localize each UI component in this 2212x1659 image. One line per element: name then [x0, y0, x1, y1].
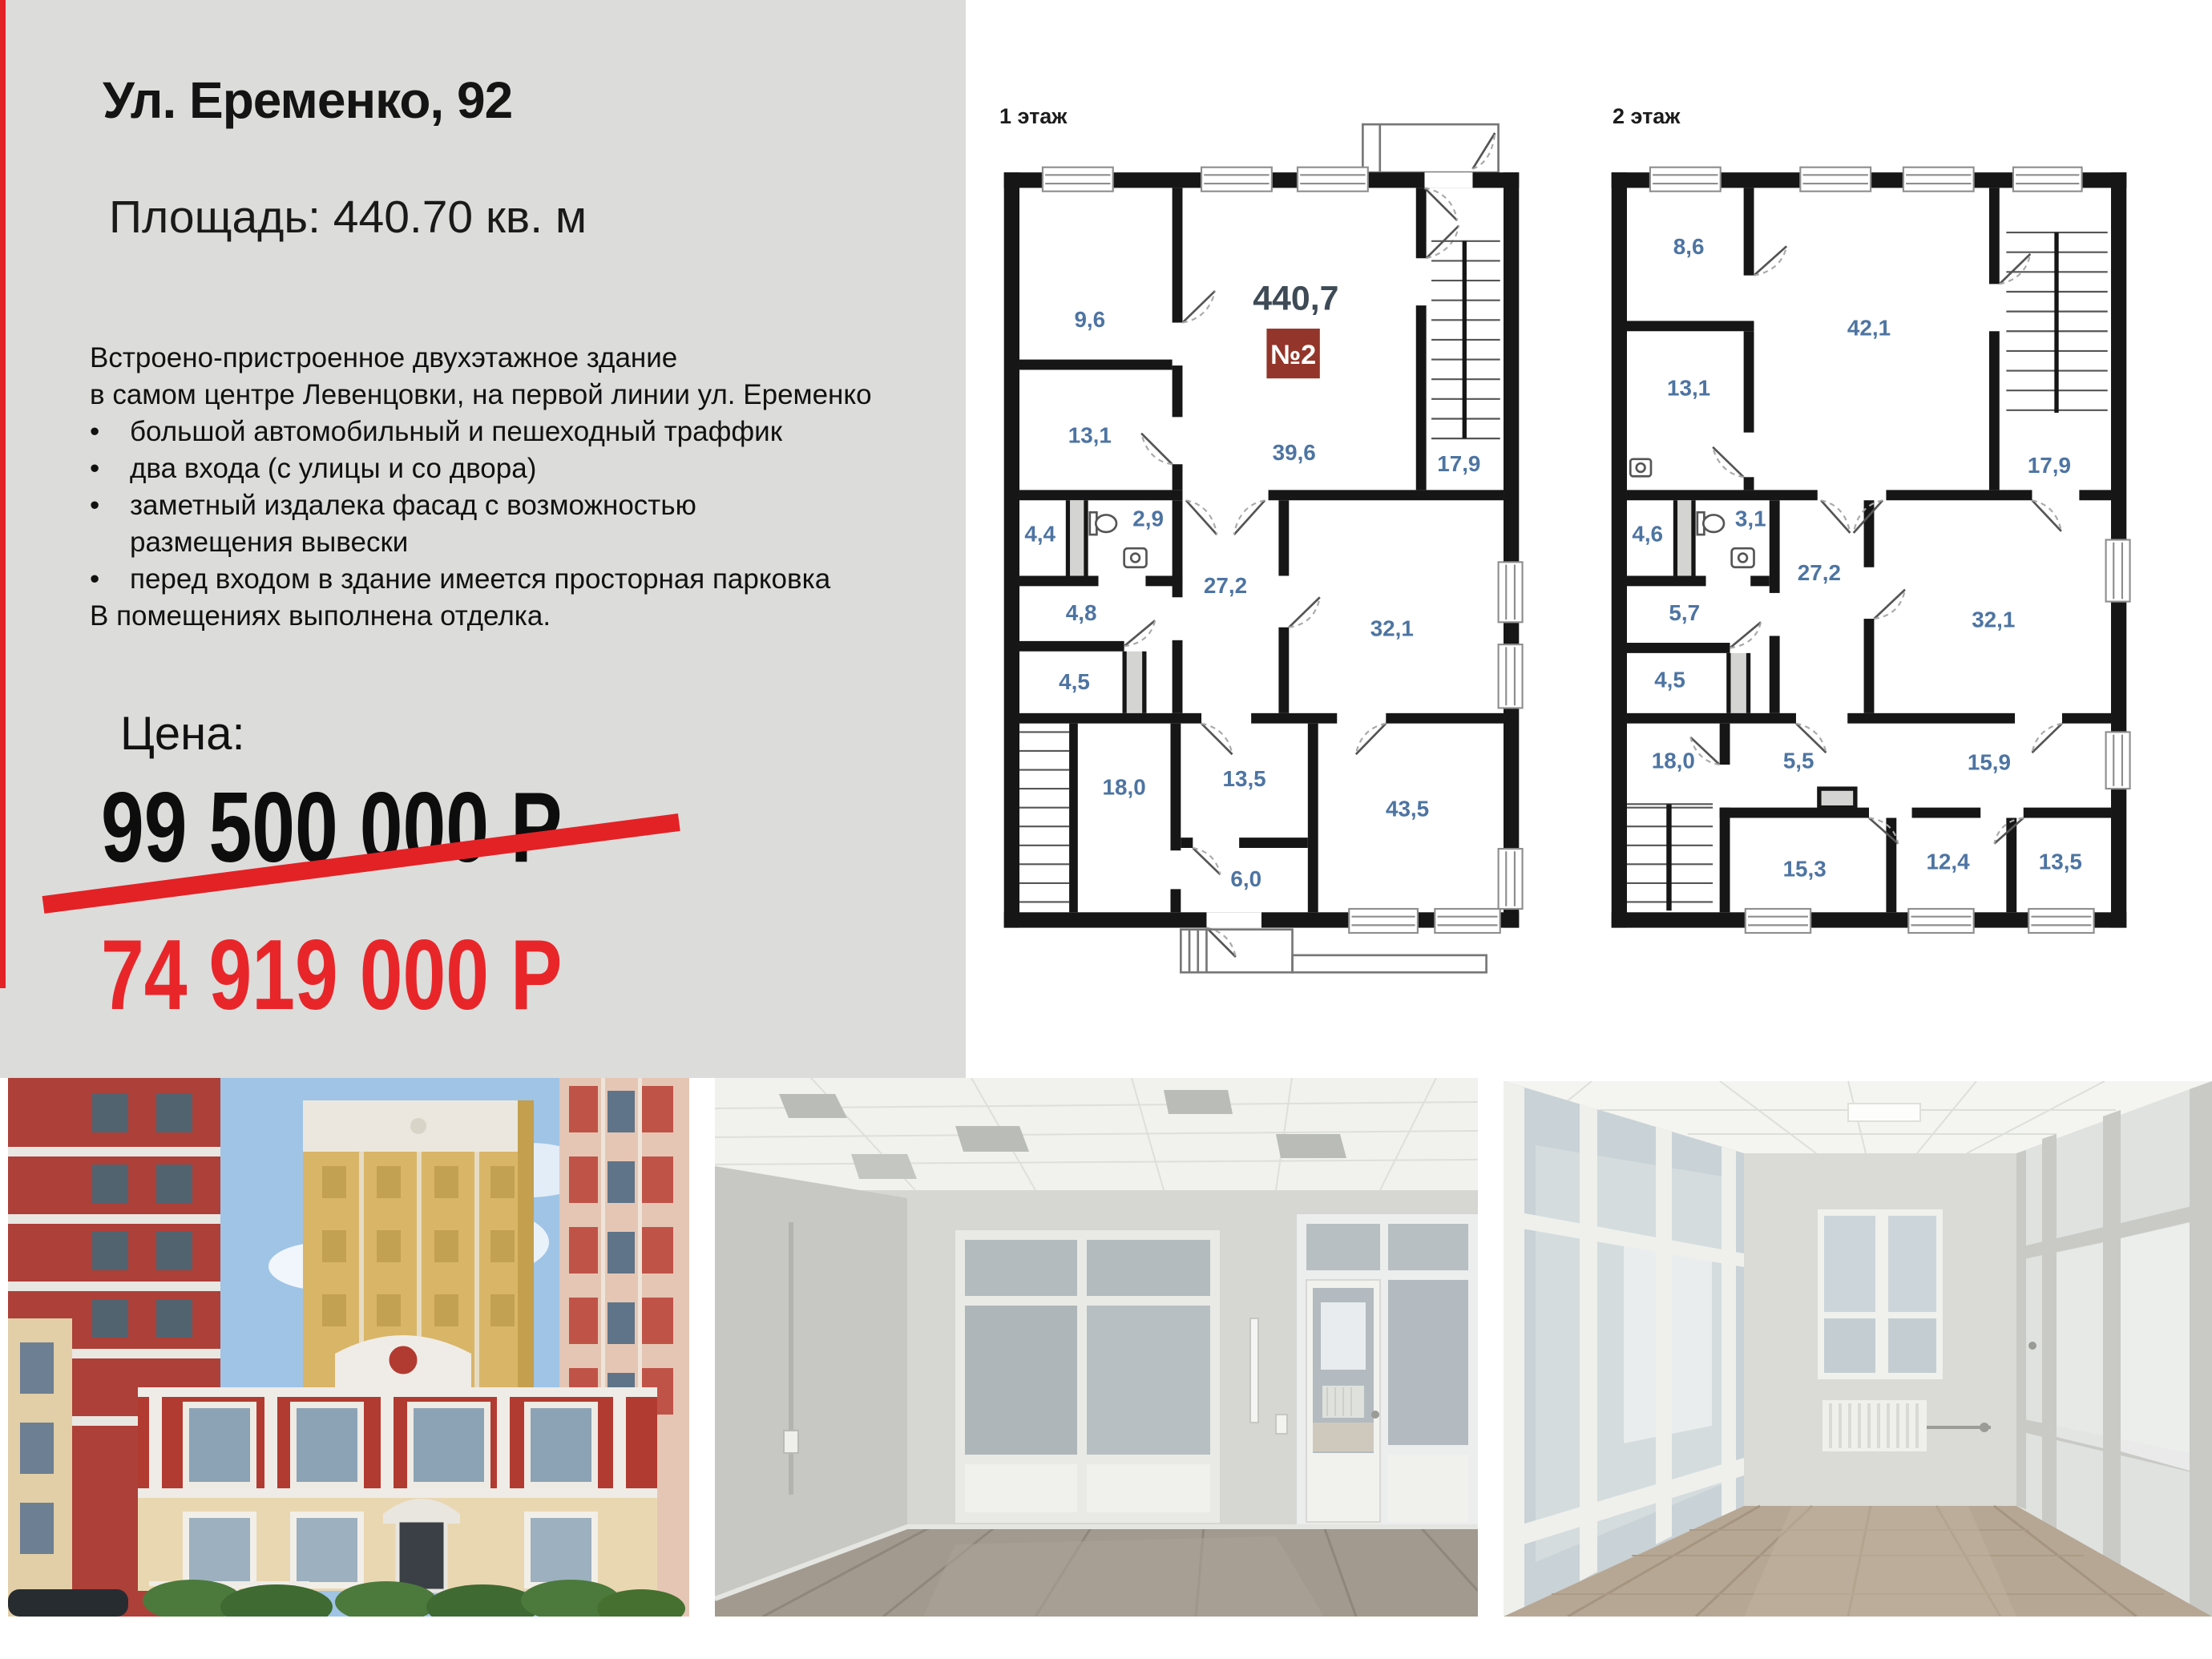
room-label: 27,2	[1204, 573, 1247, 598]
description-block: Встроено-пристроенное двухэтажное здание…	[90, 340, 955, 635]
room-label: 4,4	[1024, 522, 1056, 547]
room-label: 13,5	[1222, 766, 1265, 791]
end-window	[1818, 1209, 1943, 1379]
bullet-text: размещения вывески	[130, 524, 408, 561]
glass-partition-left	[955, 1230, 1220, 1523]
description-line: В помещениях выполнена отделка.	[90, 598, 955, 635]
description-text: Встроено-пристроенное двухэтажное здание	[90, 340, 677, 377]
room-label: 17,9	[2028, 453, 2071, 478]
new-price: 74 919 000 Р	[101, 918, 562, 1032]
accent-stripe	[0, 0, 6, 988]
description-line: в самом центре Левенцовки, на первой лин…	[90, 377, 955, 414]
page-title: Ул. Еременко, 92	[103, 71, 512, 130]
floor1-exit-porch	[1181, 930, 1486, 973]
door-handle	[1371, 1411, 1379, 1419]
room-label: 2,9	[1132, 506, 1164, 531]
car	[8, 1589, 128, 1617]
description-line: Встроено-пристроенное двухэтажное здание	[90, 340, 955, 377]
glass-door-wall	[1297, 1214, 1478, 1531]
room-label: 18,0	[1103, 775, 1146, 800]
bullet-item: •два входа (с улицы и со двора)	[90, 450, 955, 487]
room-label: 5,5	[1783, 748, 1814, 773]
room-label: 9,6	[1074, 307, 1105, 332]
bullet-text: перед входом в здание имеется просторная…	[130, 561, 830, 598]
room-label: 32,1	[1972, 607, 2015, 632]
room-label: 6,0	[1230, 866, 1261, 891]
room-label: 13,5	[2039, 850, 2082, 874]
bullet-text: заметный издалека фасад с возможностью	[130, 487, 696, 524]
photo-office-interior	[715, 1078, 1478, 1617]
room-label: 43,5	[1386, 796, 1429, 821]
room-label: 32,1	[1370, 616, 1414, 640]
room-label: 8,6	[1673, 234, 1705, 259]
bullet-text: два входа (с улицы и со двора)	[130, 450, 536, 487]
room-label: 4,8	[1066, 600, 1097, 625]
room-label: 12,4	[1926, 850, 1970, 874]
room-label: 4,5	[1654, 668, 1685, 692]
photo-building-exterior	[8, 1078, 689, 1617]
room-label: 15,3	[1783, 856, 1827, 881]
price-label: Цена:	[120, 707, 245, 761]
description-text: В помещениях выполнена отделка.	[90, 598, 551, 635]
photo-corridor-interior	[1504, 1081, 2212, 1617]
room-label: 5,7	[1669, 600, 1700, 625]
room-label: 27,2	[1798, 560, 1841, 585]
floorplan-floor1: 440,7 №2 9,6 13,1 39,6 17,9 4,4 2,9 27,2…	[995, 112, 1528, 979]
bullet-text: большой автомобильный и пешеходный трафф…	[130, 414, 782, 450]
bullet-item: •перед входом в здание имеется просторна…	[90, 561, 955, 598]
room-label: 13,1	[1068, 422, 1112, 447]
bullet-icon: •	[90, 414, 130, 450]
floor1-entry-porch-top	[1362, 124, 1498, 172]
presentation-slide: Ул. Еременко, 92 Площадь: 440.70 кв. м В…	[0, 0, 2212, 1659]
room-label: 13,1	[1667, 376, 1710, 401]
total-area-label: 440,7	[1253, 279, 1338, 317]
room-label: 18,0	[1652, 748, 1695, 773]
room-label: 17,9	[1437, 451, 1480, 476]
bullet-item: •большой автомобильный и пешеходный траф…	[90, 414, 955, 450]
unit-number: №2	[1270, 340, 1316, 370]
bullet-icon: •	[90, 561, 130, 598]
room-label: 4,6	[1632, 522, 1663, 547]
bullet-item: •заметный издалека фасад с возможностью	[90, 487, 955, 524]
door-handle	[2028, 1342, 2036, 1350]
floorplan-floor2: 8,6 42,1 13,1 17,9 4,6 3,1 27,2 32,1 5,7…	[1603, 112, 2135, 979]
room-label: 4,5	[1059, 669, 1090, 694]
room-label: 3,1	[1735, 506, 1766, 531]
room-label: 42,1	[1847, 316, 1891, 341]
left-wall	[715, 1166, 907, 1599]
room-label: 15,9	[1968, 750, 2011, 775]
bullet-icon: •	[90, 450, 130, 487]
room-label: 39,6	[1273, 440, 1316, 465]
bushes	[143, 1580, 685, 1617]
bullet-icon: •	[90, 487, 130, 524]
ceiling	[715, 1078, 1478, 1190]
floor2-walls	[1612, 172, 2127, 927]
description-text: в самом центре Левенцовки, на первой лин…	[90, 377, 872, 414]
area-line: Площадь: 440.70 кв. м	[109, 191, 587, 244]
bullet-item-continuation: размещения вывески	[90, 524, 955, 561]
